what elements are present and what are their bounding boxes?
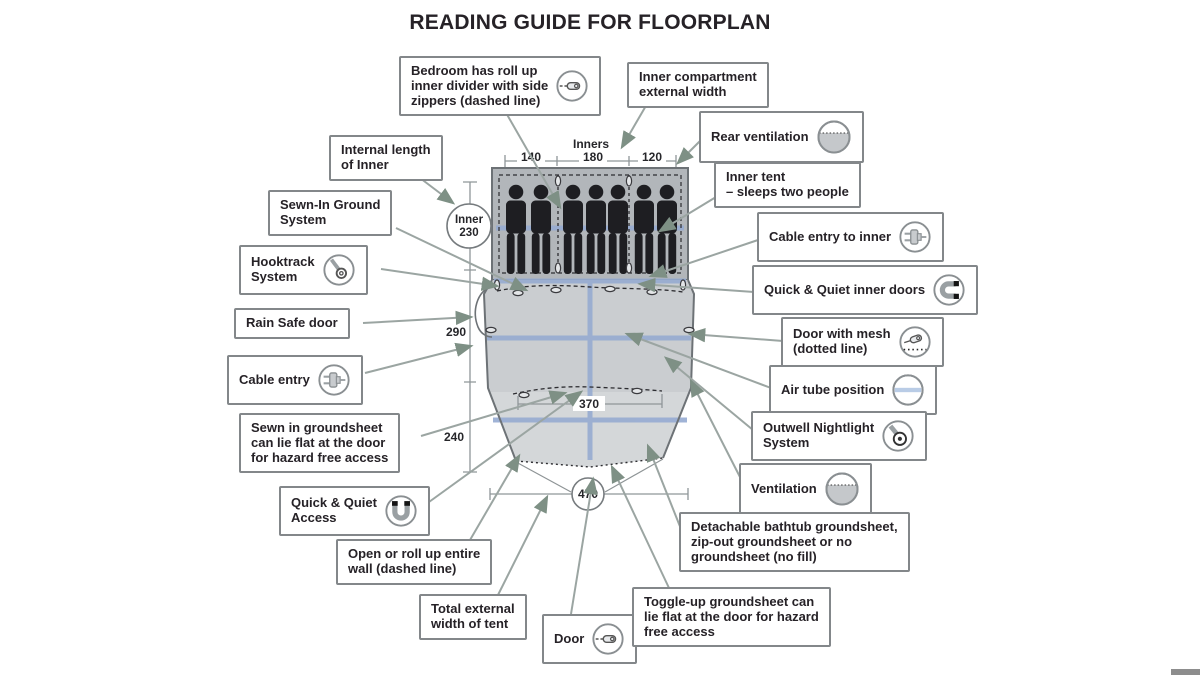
callout-label: Total external width of tent xyxy=(431,602,515,632)
plug-icon xyxy=(898,220,932,254)
width-180: 180 xyxy=(583,150,603,164)
inner-length-word: Inner xyxy=(455,214,484,226)
callout-door-with-mesh: Door with mesh (dotted line) xyxy=(781,317,944,367)
callout-inner-compartment-width: Inner compartment external width xyxy=(627,62,769,108)
callout-nightlight-system: Outwell Nightlight System xyxy=(751,411,927,461)
inners-label: Inners xyxy=(573,137,609,151)
nightlight-icon xyxy=(881,419,915,453)
callout-label: Inner tent – sleeps two people xyxy=(726,170,849,200)
callout-label: Outwell Nightlight System xyxy=(763,421,874,451)
width-120: 120 xyxy=(642,150,662,164)
magnet-icon xyxy=(932,273,966,307)
callout-label: Rear ventilation xyxy=(711,130,809,145)
callout-door: Door xyxy=(542,614,637,664)
callout-sewn-in-ground: Sewn-In Ground System xyxy=(268,190,392,236)
callout-cable-entry: Cable entry xyxy=(227,355,363,405)
callout-label: Sewn-In Ground System xyxy=(280,198,380,228)
callout-label: Quick & Quiet Access xyxy=(291,496,377,526)
ventilation-icon xyxy=(816,119,852,155)
door-width-value: 370 xyxy=(579,397,599,411)
hook-icon xyxy=(322,253,356,287)
callout-label: Cable entry xyxy=(239,373,310,388)
callout-quick-quiet-inner-doors: Quick & Quiet inner doors xyxy=(752,265,978,315)
magnet-icon xyxy=(384,494,418,528)
inner-length-value: 230 xyxy=(459,227,478,239)
callout-label: Hooktrack System xyxy=(251,255,315,285)
callout-quick-quiet-access: Quick & Quiet Access xyxy=(279,486,430,536)
callout-open-roll-wall: Open or roll up entire wall (dashed line… xyxy=(336,539,492,585)
callout-sewn-groundsheet: Sewn in groundsheet can lie flat at the … xyxy=(239,413,400,473)
callout-toggle-up-groundsheet: Toggle-up groundsheet can lie flat at th… xyxy=(632,587,831,647)
callout-rear-ventilation: Rear ventilation xyxy=(699,111,864,163)
callout-cable-entry-inner: Cable entry to inner xyxy=(757,212,944,262)
callout-label: Quick & Quiet inner doors xyxy=(764,283,925,298)
callout-total-width: Total external width of tent xyxy=(419,594,527,640)
callout-hooktrack: Hooktrack System xyxy=(239,245,368,295)
living-depth-value: 290 xyxy=(446,325,466,339)
plug-icon xyxy=(317,363,351,397)
callout-label: Bedroom has roll up inner divider with s… xyxy=(411,64,548,108)
zipper-mesh-icon xyxy=(898,325,932,359)
corner-scroll-bar xyxy=(1171,669,1200,675)
callout-label: Toggle-up groundsheet can lie flat at th… xyxy=(644,595,819,639)
callout-label: Inner compartment external width xyxy=(639,70,757,100)
inner-length-circle xyxy=(447,204,491,248)
callout-label: Ventilation xyxy=(751,482,817,497)
callout-label: Cable entry to inner xyxy=(769,230,891,245)
callout-label: Detachable bathtub groundsheet, zip-out … xyxy=(691,520,898,564)
callout-label: Air tube position xyxy=(781,383,884,398)
callout-ventilation: Ventilation xyxy=(739,463,872,515)
callout-label: Rain Safe door xyxy=(246,316,338,331)
callout-air-tube-position: Air tube position xyxy=(769,365,937,415)
zipper-icon xyxy=(591,622,625,656)
air-tube-icon xyxy=(891,373,925,407)
page-title: READING GUIDE FOR FLOORPLAN xyxy=(300,11,880,35)
callout-inner-tent-sleeps: Inner tent – sleeps two people xyxy=(714,162,861,208)
front-depth-value: 240 xyxy=(444,430,464,444)
callout-detachable-groundsheet: Detachable bathtub groundsheet, zip-out … xyxy=(679,512,910,572)
callout-internal-length: Internal length of Inner xyxy=(329,135,443,181)
ventilation-icon xyxy=(824,471,860,507)
callout-label: Door xyxy=(554,632,584,647)
callout-bedroom-divider: Bedroom has roll up inner divider with s… xyxy=(399,56,601,116)
callout-label: Sewn in groundsheet can lie flat at the … xyxy=(251,421,388,465)
callout-label: Open or roll up entire wall (dashed line… xyxy=(348,547,480,577)
total-width-value: 470 xyxy=(578,487,598,501)
callout-label: Internal length of Inner xyxy=(341,143,431,173)
callout-label: Door with mesh (dotted line) xyxy=(793,327,891,357)
zipper-icon xyxy=(555,69,589,103)
callout-rain-safe-door: Rain Safe door xyxy=(234,308,350,339)
